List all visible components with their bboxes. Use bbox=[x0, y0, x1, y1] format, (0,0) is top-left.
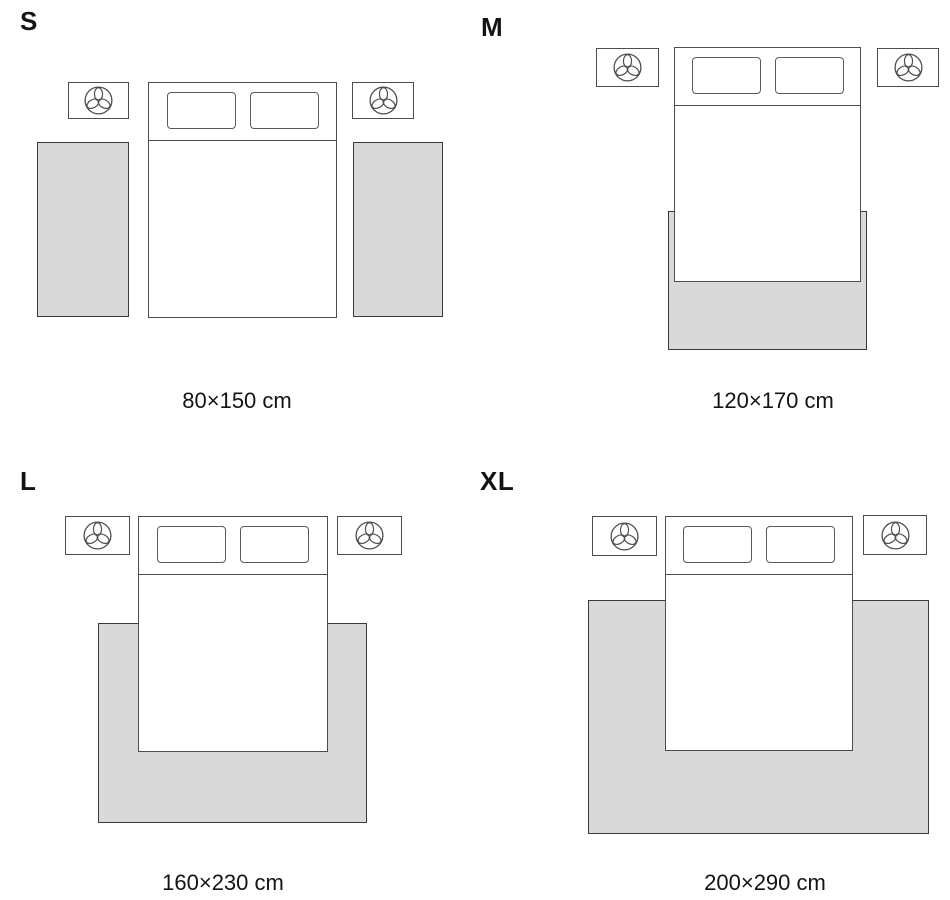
pillow-left bbox=[683, 526, 752, 563]
size-panel-s: S 80×150 cm bbox=[0, 0, 475, 450]
bed-headboard bbox=[149, 83, 336, 141]
size-label-xl: XL bbox=[480, 468, 514, 494]
pillow-left bbox=[157, 526, 226, 563]
nightstand-right bbox=[863, 515, 927, 555]
runner-rug-right bbox=[353, 142, 443, 317]
size-caption-s: 80×150 cm bbox=[87, 388, 387, 414]
bedroom-diagram-s bbox=[0, 0, 475, 450]
pillow-right bbox=[250, 92, 319, 129]
bedroom-diagram-m bbox=[475, 0, 950, 450]
size-panel-m: M 120×170 cm bbox=[475, 0, 950, 450]
plant-icon bbox=[81, 519, 114, 552]
bed bbox=[674, 47, 861, 282]
bedroom-diagram-l bbox=[0, 450, 475, 900]
nightstand-right bbox=[337, 516, 402, 555]
plant-icon bbox=[608, 520, 641, 553]
nightstand-right bbox=[877, 48, 939, 87]
bed-headboard bbox=[139, 517, 327, 575]
nightstand-left bbox=[65, 516, 130, 555]
size-panel-xl: XL 200×290 cm bbox=[475, 450, 950, 900]
plant-icon bbox=[367, 84, 400, 117]
bedroom-diagram-xl bbox=[475, 450, 950, 900]
nightstand-left bbox=[68, 82, 129, 119]
size-panel-l: L 160×230 cm bbox=[0, 450, 475, 900]
pillow-right bbox=[766, 526, 835, 563]
pillow-left bbox=[167, 92, 236, 129]
size-caption-xl: 200×290 cm bbox=[615, 870, 915, 896]
plant-icon bbox=[879, 519, 912, 552]
pillow-right bbox=[240, 526, 309, 563]
rug-size-guide: S 80×150 cm M 120×170 cm bbox=[0, 0, 950, 900]
size-label-m: M bbox=[481, 14, 503, 40]
bed bbox=[138, 516, 328, 752]
pillow-left bbox=[692, 57, 761, 94]
plant-icon bbox=[892, 51, 925, 84]
plant-icon bbox=[82, 84, 115, 117]
plant-icon bbox=[353, 519, 386, 552]
size-caption-l: 160×230 cm bbox=[73, 870, 373, 896]
bed-headboard bbox=[675, 48, 860, 106]
plant-icon bbox=[611, 51, 644, 84]
bed bbox=[665, 516, 853, 751]
bed bbox=[148, 82, 337, 318]
pillow-right bbox=[775, 57, 844, 94]
nightstand-left bbox=[592, 516, 657, 556]
nightstand-left bbox=[596, 48, 659, 87]
runner-rug-left bbox=[37, 142, 129, 317]
size-label-s: S bbox=[20, 8, 38, 34]
size-label-l: L bbox=[20, 468, 36, 494]
nightstand-right bbox=[352, 82, 414, 119]
bed-headboard bbox=[666, 517, 852, 575]
size-caption-m: 120×170 cm bbox=[623, 388, 923, 414]
